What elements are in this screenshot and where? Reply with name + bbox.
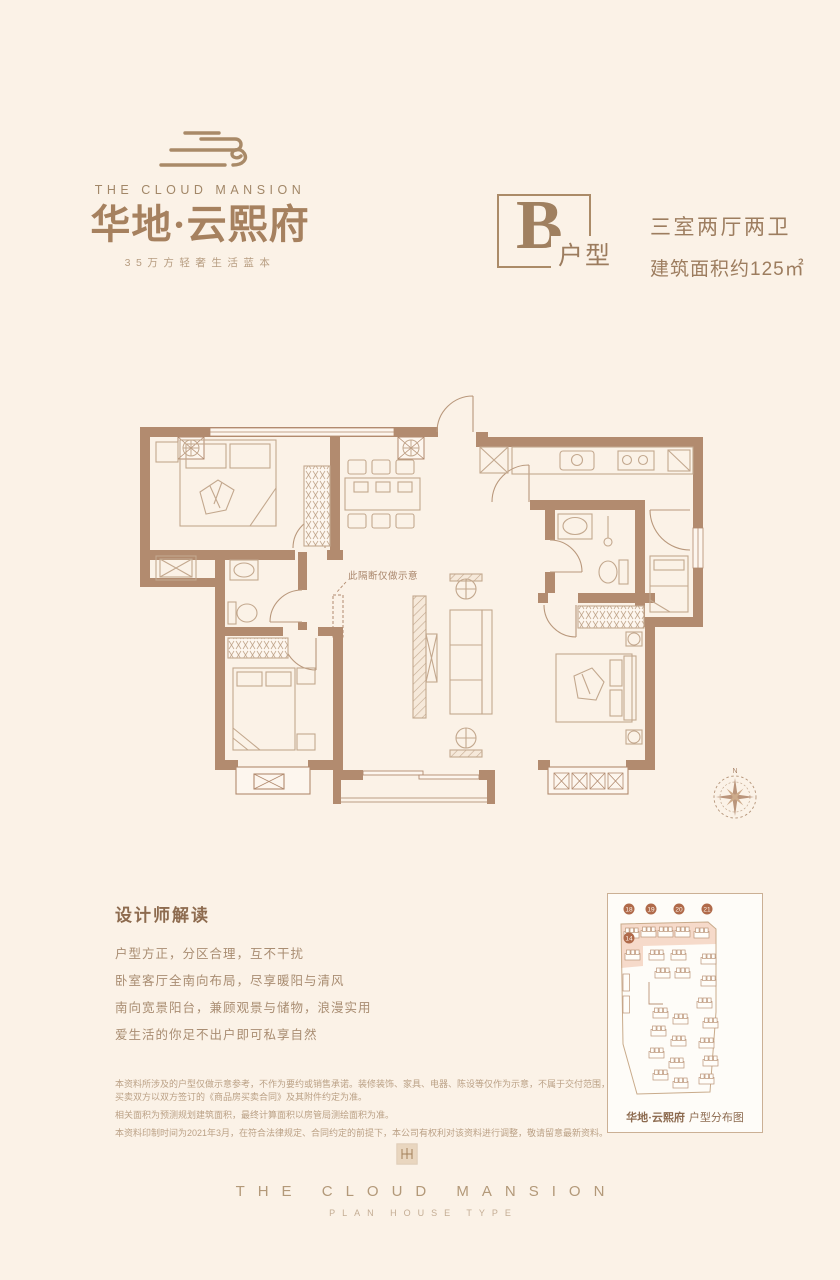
- bathroom-second: [228, 560, 258, 624]
- living-room: [413, 574, 492, 757]
- brand-name-cn: 华地·云熙府: [88, 202, 312, 248]
- disclaimer-paragraph: 本资料所涉及的户型仅做示意参考，不作为要约或销售承诺。装修装饰、家具、电器、陈设…: [115, 1078, 690, 1104]
- disclaimer-paragraph: 相关面积为预测规划建筑面积，最终计算面积以房管局测绘面积为准。: [115, 1109, 690, 1122]
- bed-bottomleft: [233, 668, 315, 750]
- footer-subtitle-en: PLAN HOUSE TYPE: [0, 1208, 840, 1218]
- brand-name-en: THE CLOUD MANSION: [88, 183, 312, 197]
- partition-note-text: 此隔断仅做示意: [348, 570, 418, 582]
- designer-note-line: 户型方正，分区合理，互不干扰: [115, 943, 372, 962]
- designer-notes-title: 设计师解读: [115, 901, 372, 926]
- compass-north-label: N: [732, 768, 737, 775]
- floor-plan-drawing: 此隔断仅做示意 N: [130, 390, 760, 835]
- seal-icon: [396, 1143, 418, 1165]
- site-map-label: 户型分布图: [689, 1112, 744, 1124]
- building-number: 20: [675, 906, 683, 913]
- wardrobe-master: [578, 606, 644, 628]
- unit-rooms: 三室两厅两卫: [650, 211, 805, 241]
- footer: THE CLOUD MANSION PLAN HOUSE TYPE: [0, 1183, 840, 1218]
- designer-note-line: 爱生活的你足不出户即可私享自然: [115, 1024, 372, 1043]
- poster-page: THE CLOUD MANSION 华地·云熙府 35万方轻奢生活蓝本 B 户型…: [0, 0, 840, 1280]
- disclaimer: 本资料所涉及的户型仅做示意参考，不作为要约或销售承诺。装修装饰、家具、电器、陈设…: [115, 1078, 690, 1145]
- site-map-brand: 华地·云熙府: [626, 1112, 685, 1124]
- cloud-logo-icon: [141, 124, 259, 178]
- designer-notes: 设计师解读 户型方正，分区合理，互不干扰 卧室客厅全南向布局，尽享暖阳与清风 南…: [115, 901, 372, 1051]
- unit-specs: 三室两厅两卫 建筑面积约125㎡: [650, 211, 805, 281]
- designer-note-line: 卧室客厅全南向布局，尽享暖阳与清风: [115, 970, 372, 989]
- bed-right: [650, 556, 688, 612]
- bed-topleft: [156, 440, 276, 526]
- footer-title-en: THE CLOUD MANSION: [0, 1183, 840, 1200]
- site-map-card: 18 19 20 21 14 华地·云熙府户型分布图: [607, 893, 763, 1133]
- bed-master: [556, 632, 642, 744]
- site-buildings: [623, 927, 718, 1088]
- disclaimer-paragraph: 本资料印制时间为2021年3月，在符合法律规定、合同约定的前提下，本公司有权利对…: [115, 1127, 690, 1140]
- building-number: 21: [703, 906, 711, 913]
- dining-set: [345, 460, 420, 528]
- compass-icon: N: [714, 768, 756, 818]
- building-number: 19: [647, 906, 655, 913]
- brand-tagline: 35万方轻奢生活蓝本: [88, 255, 312, 270]
- building-number: 18: [625, 906, 633, 913]
- unit-area: 建筑面积约125㎡: [650, 254, 805, 281]
- designer-note-line: 南向宽景阳台，兼顾观景与储物，浪漫实用: [115, 997, 372, 1016]
- wardrobe-bottomleft: [228, 638, 288, 658]
- site-map-drawing: 18 19 20 21 14: [611, 896, 759, 1098]
- building-number-highlight: 14: [625, 935, 633, 942]
- wardrobe-topleft: [304, 466, 330, 546]
- bathroom-main: [558, 514, 628, 584]
- kitchen: [480, 447, 693, 474]
- unit-type-label: 户型: [551, 236, 616, 275]
- site-map-caption: 华地·云熙府户型分布图: [608, 1109, 762, 1125]
- partition-note: 此隔断仅做示意: [333, 570, 418, 637]
- brand-logo-block: THE CLOUD MANSION 华地·云熙府 35万方轻奢生活蓝本: [88, 124, 312, 270]
- floor-plan: 此隔断仅做示意 N: [130, 390, 760, 835]
